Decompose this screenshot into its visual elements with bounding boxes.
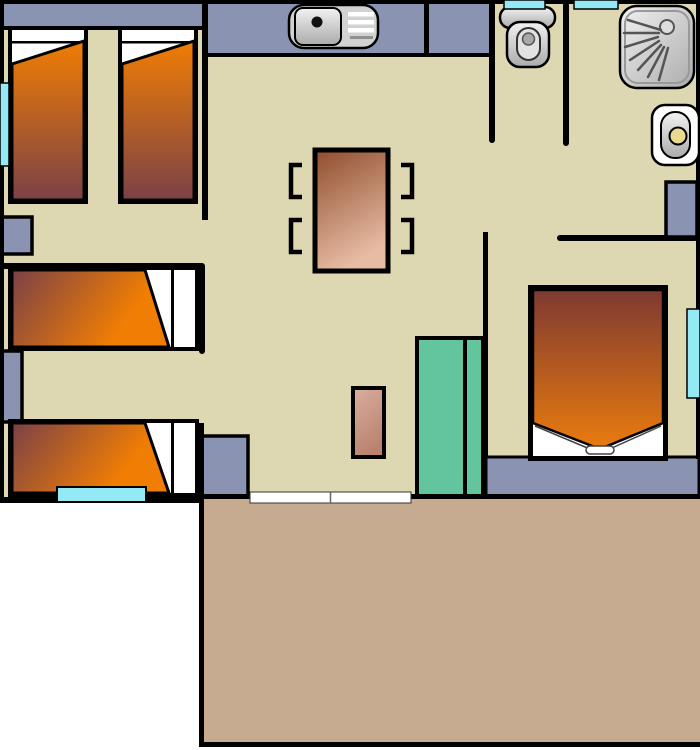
washbasin-drain <box>670 128 687 145</box>
kitchen-counter-right <box>429 4 489 53</box>
toilet <box>500 7 555 67</box>
bed-blanket <box>122 41 194 200</box>
shower-tray <box>620 6 694 88</box>
drainer-shadow <box>350 36 373 39</box>
drainer-bar <box>348 12 374 17</box>
bed-blanket <box>533 290 663 449</box>
pillow-center <box>586 446 614 454</box>
left-wardrobe-unit <box>2 351 22 422</box>
living-room-cabinet <box>201 436 248 497</box>
window-bathroom <box>574 0 618 9</box>
wardrobe-tall <box>417 338 465 496</box>
single-bed-2 <box>118 26 198 204</box>
bed-blanket <box>12 270 169 347</box>
sliding-door <box>250 492 411 503</box>
terrace <box>203 497 700 742</box>
washbasin <box>652 105 699 165</box>
single-bed-4 <box>8 419 199 497</box>
shower-head <box>660 20 674 34</box>
window-wc <box>504 0 545 9</box>
counter-edge <box>208 53 489 57</box>
wall-bedroom1-kitchen <box>202 2 208 220</box>
drainer-bar <box>348 28 374 33</box>
window-bedroom-right <box>687 309 700 398</box>
pillow-edge <box>171 270 174 347</box>
bedroom-top-wall-band <box>4 4 202 26</box>
kitchen-sink <box>289 5 378 48</box>
wall-kitchen-hall <box>489 2 495 143</box>
double-bed-headboard-unit <box>486 457 699 496</box>
side-table <box>353 388 384 457</box>
shower <box>620 6 694 88</box>
bed-blanket <box>12 423 169 493</box>
toilet-flush <box>523 33 535 45</box>
window-left <box>0 83 9 166</box>
terrace-edge-bottom <box>199 742 700 747</box>
exterior-wall-left <box>0 0 4 503</box>
sink-drain <box>312 17 323 28</box>
counter-divider <box>424 4 429 53</box>
drainer-bar <box>348 20 374 25</box>
single-bed-3 <box>8 266 199 351</box>
dining-table <box>315 150 388 271</box>
bathroom-cabinet <box>666 182 697 237</box>
wall-wc-bathroom <box>563 2 569 146</box>
double-bed <box>528 285 668 461</box>
pillow-edge <box>171 423 174 493</box>
terrace-edge-left <box>199 423 204 747</box>
bed-blanket <box>12 41 84 200</box>
single-bed-1 <box>8 26 88 204</box>
wardrobe-narrow <box>465 338 483 496</box>
nightstand <box>2 217 32 254</box>
floorplan <box>0 0 700 750</box>
window-bottom <box>57 487 146 502</box>
